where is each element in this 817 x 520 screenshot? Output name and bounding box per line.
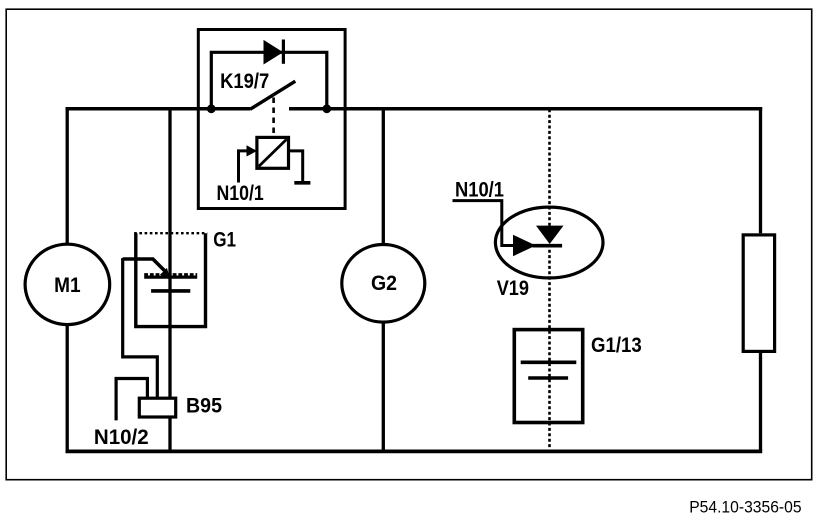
- svg-text:N10/1: N10/1: [217, 182, 265, 205]
- svg-text:G1/13: G1/13: [591, 334, 642, 357]
- svg-text:V19: V19: [497, 277, 529, 300]
- svg-text:P54.10-3356-05: P54.10-3356-05: [689, 499, 801, 517]
- svg-text:B95: B95: [186, 395, 222, 418]
- svg-text:G1: G1: [213, 229, 236, 252]
- svg-text:N10/2: N10/2: [94, 426, 149, 449]
- svg-text:G2: G2: [371, 272, 397, 295]
- svg-text:M1: M1: [54, 274, 81, 297]
- svg-text:K19/7: K19/7: [220, 70, 269, 93]
- svg-text:N10/1: N10/1: [455, 179, 504, 202]
